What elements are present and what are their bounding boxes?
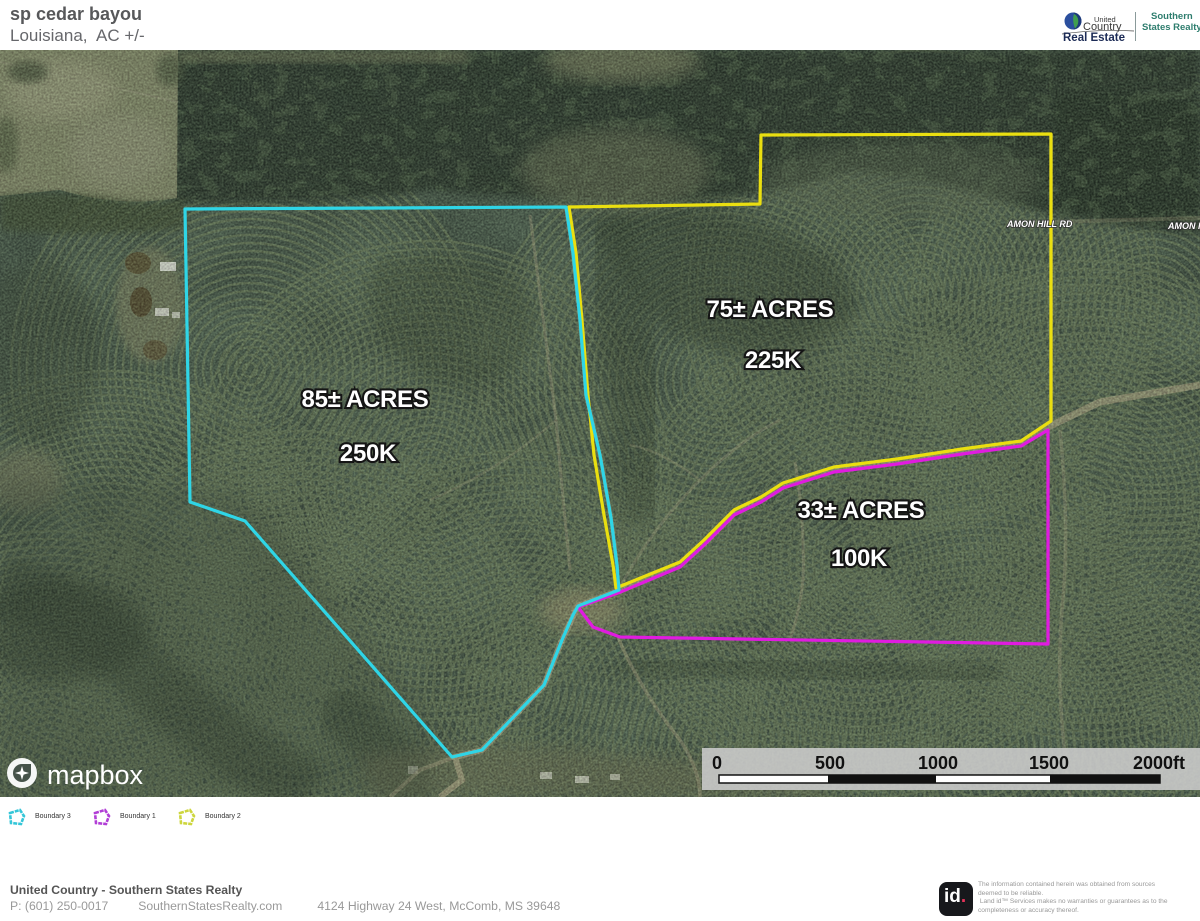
svg-text:225K: 225K bbox=[745, 347, 802, 374]
svg-text:AMON R: AMON R bbox=[1167, 221, 1200, 231]
svg-text:0: 0 bbox=[712, 753, 722, 773]
svg-text:mapbox: mapbox bbox=[47, 760, 144, 790]
svg-text:1000: 1000 bbox=[918, 753, 958, 773]
svg-text:AMON HILL RD: AMON HILL RD bbox=[1006, 219, 1073, 229]
svg-text:Real Estate: Real Estate bbox=[1063, 32, 1125, 44]
svg-text:85± ACRES: 85± ACRES bbox=[302, 386, 429, 413]
svg-text:1500: 1500 bbox=[1029, 753, 1069, 773]
svg-text:2000ft: 2000ft bbox=[1133, 753, 1185, 773]
svg-text:250K: 250K bbox=[340, 440, 397, 467]
svg-text:75± ACRES: 75± ACRES bbox=[707, 296, 834, 323]
svg-text:33± ACRES: 33± ACRES bbox=[798, 497, 925, 524]
svg-text:100K: 100K bbox=[831, 545, 888, 572]
svg-text:500: 500 bbox=[815, 753, 845, 773]
